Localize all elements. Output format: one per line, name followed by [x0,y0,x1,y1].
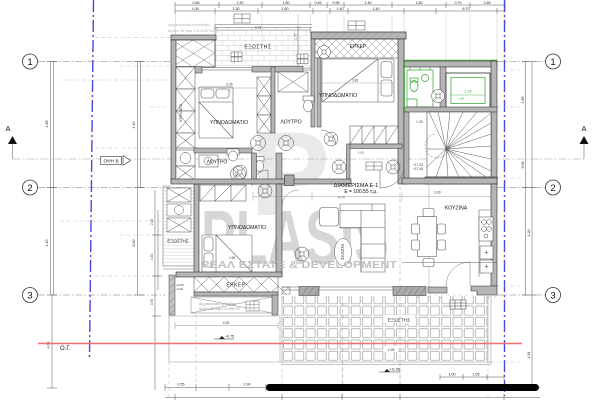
svg-text:2: 2 [550,183,555,194]
svg-text:ΥΠΝΟΔΩΜΑΤΙΟ: ΥΠΝΟΔΩΜΑΤΙΟ [210,120,248,126]
svg-text:2.15: 2.15 [150,219,154,225]
svg-text:1: 1 [27,57,32,68]
svg-text:1.40: 1.40 [373,7,380,11]
svg-text:3: 3 [27,290,32,301]
svg-text:1.05: 1.05 [192,7,199,11]
svg-text:Αρχιτεκτονική προσθήκη: Αρχιτεκτονική προσθήκη [168,23,209,27]
svg-text:1.30: 1.30 [233,7,240,11]
svg-text:ΡΕΑΛ ΕΣΤΑΤΕ & DEVELOPMENT: ΡΕΑΛ ΕΣΤΑΤΕ & DEVELOPMENT [201,260,397,271]
svg-text:Άρθρο 36 παρ.1 Ν.4067/12: Άρθρο 36 παρ.1 Ν.4067/12 [199,307,240,311]
svg-text:ΚΟΥΖΙΝΑ: ΚΟΥΖΙΝΑ [445,206,468,212]
svg-text:-0.40: -0.40 [176,287,183,291]
svg-text:1.60: 1.60 [283,1,290,5]
svg-text:0.45: 0.45 [315,1,322,5]
svg-text:8.60: 8.60 [132,240,136,247]
svg-text:3: 3 [550,290,555,301]
svg-text:9.06: 9.06 [521,162,525,169]
svg-text:0.70: 0.70 [455,1,462,5]
svg-text:1.60: 1.60 [416,1,423,5]
svg-text:1.1Α: 1.1Α [464,90,472,94]
svg-text:1.05: 1.05 [358,151,364,155]
svg-text:0.55: 0.55 [178,383,185,387]
svg-text:2.65: 2.65 [484,1,491,5]
svg-text:0.95: 0.95 [333,1,340,5]
svg-text:3.79: 3.79 [255,26,262,30]
svg-text:4.20: 4.20 [45,240,49,247]
svg-text:ΥΠΝΟΔΩΜΑΤΙΟ: ΥΠΝΟΔΩΜΑΤΙΟ [228,225,266,231]
svg-text:1.05: 1.05 [473,373,480,377]
svg-text:ΕΡΚΕΡ: ΕΡΚΕΡ [350,44,367,50]
svg-text:2: 2 [27,183,32,194]
svg-text:0.65: 0.65 [193,1,200,5]
svg-text:4.85: 4.85 [45,121,49,128]
svg-text:A: A [5,124,10,133]
svg-text:ΣΑΛΟΝΙ: ΣΑΛΟΝΙ [340,244,345,260]
svg-text:3.60: 3.60 [434,191,441,195]
svg-text:1.95: 1.95 [388,348,395,352]
svg-text:ΕΡΚΕΡ: ΕΡΚΕΡ [226,283,245,289]
svg-text:1.00: 1.00 [449,373,456,377]
svg-text:ΕΞΩΣΤΗΣ: ΕΞΩΣΤΗΣ [244,45,271,51]
svg-text:1.40: 1.40 [337,7,344,11]
svg-text:1.70: 1.70 [294,33,298,40]
svg-text:4.25: 4.25 [223,321,230,325]
svg-text:1.30: 1.30 [237,1,244,5]
svg-text:+11.66: +11.66 [389,368,400,372]
svg-text:4.46: 4.46 [132,122,136,129]
svg-text:4.70: 4.70 [338,196,345,200]
svg-text:1.40: 1.40 [365,1,372,5]
svg-text:ΛΟΥΤΡΟ: ΛΟΥΤΡΟ [207,160,228,166]
svg-text:4.40: 4.40 [150,254,154,260]
svg-text:1: 1 [550,57,555,68]
svg-text:0.90: 0.90 [150,299,154,305]
svg-text:Αρχιτεκτονική προσθήκη: Αρχιτεκτονική προσθήκη [199,302,236,306]
svg-text:ΕΞΩΣΤΗΣ: ΕΞΩΣΤΗΣ [388,318,410,324]
svg-text:A: A [581,124,586,133]
svg-text:3.76: 3.76 [226,83,233,87]
svg-text:6.70: 6.70 [463,7,470,11]
svg-text:ΥΠΝΟΔΩΜΑΤΙΟ: ΥΠΝΟΔΩΜΑΤΙΟ [319,93,357,99]
svg-text:ΟΨΗ Β: ΟΨΗ Β [103,159,118,164]
svg-text:ΛΟΥΤΡΟ: ΛΟΥΤΡΟ [280,120,301,126]
svg-text:+0.75: +0.75 [225,335,234,339]
svg-text:4.04: 4.04 [47,342,51,349]
svg-text:Άρθρο 36 παρ.1 Ν.4067/12: Άρθρο 36 παρ.1 Ν.4067/12 [168,29,214,33]
svg-text:4.85: 4.85 [521,97,525,104]
svg-text:1.30: 1.30 [416,120,423,124]
svg-text:4.84: 4.84 [527,352,531,359]
svg-text:Ο.Γ.: Ο.Γ. [60,346,71,352]
svg-text:1.60: 1.60 [282,7,289,11]
svg-text:3.85: 3.85 [352,79,358,83]
svg-text:2.90: 2.90 [244,383,251,387]
svg-text:ΝΤΟΥΛΑΠΑ: ΝΤΟΥΛΑΠΑ [179,103,183,122]
svg-text:4.20: 4.20 [527,230,531,237]
svg-text:+17.48: +17.48 [413,167,423,171]
svg-text:1.60: 1.60 [458,97,464,101]
svg-text:ΕΞΩΣΤΗΣ: ΕΞΩΣΤΗΣ [167,239,188,244]
svg-text:Ε = 100.55 τ.μ.: Ε = 100.55 τ.μ. [344,189,377,195]
